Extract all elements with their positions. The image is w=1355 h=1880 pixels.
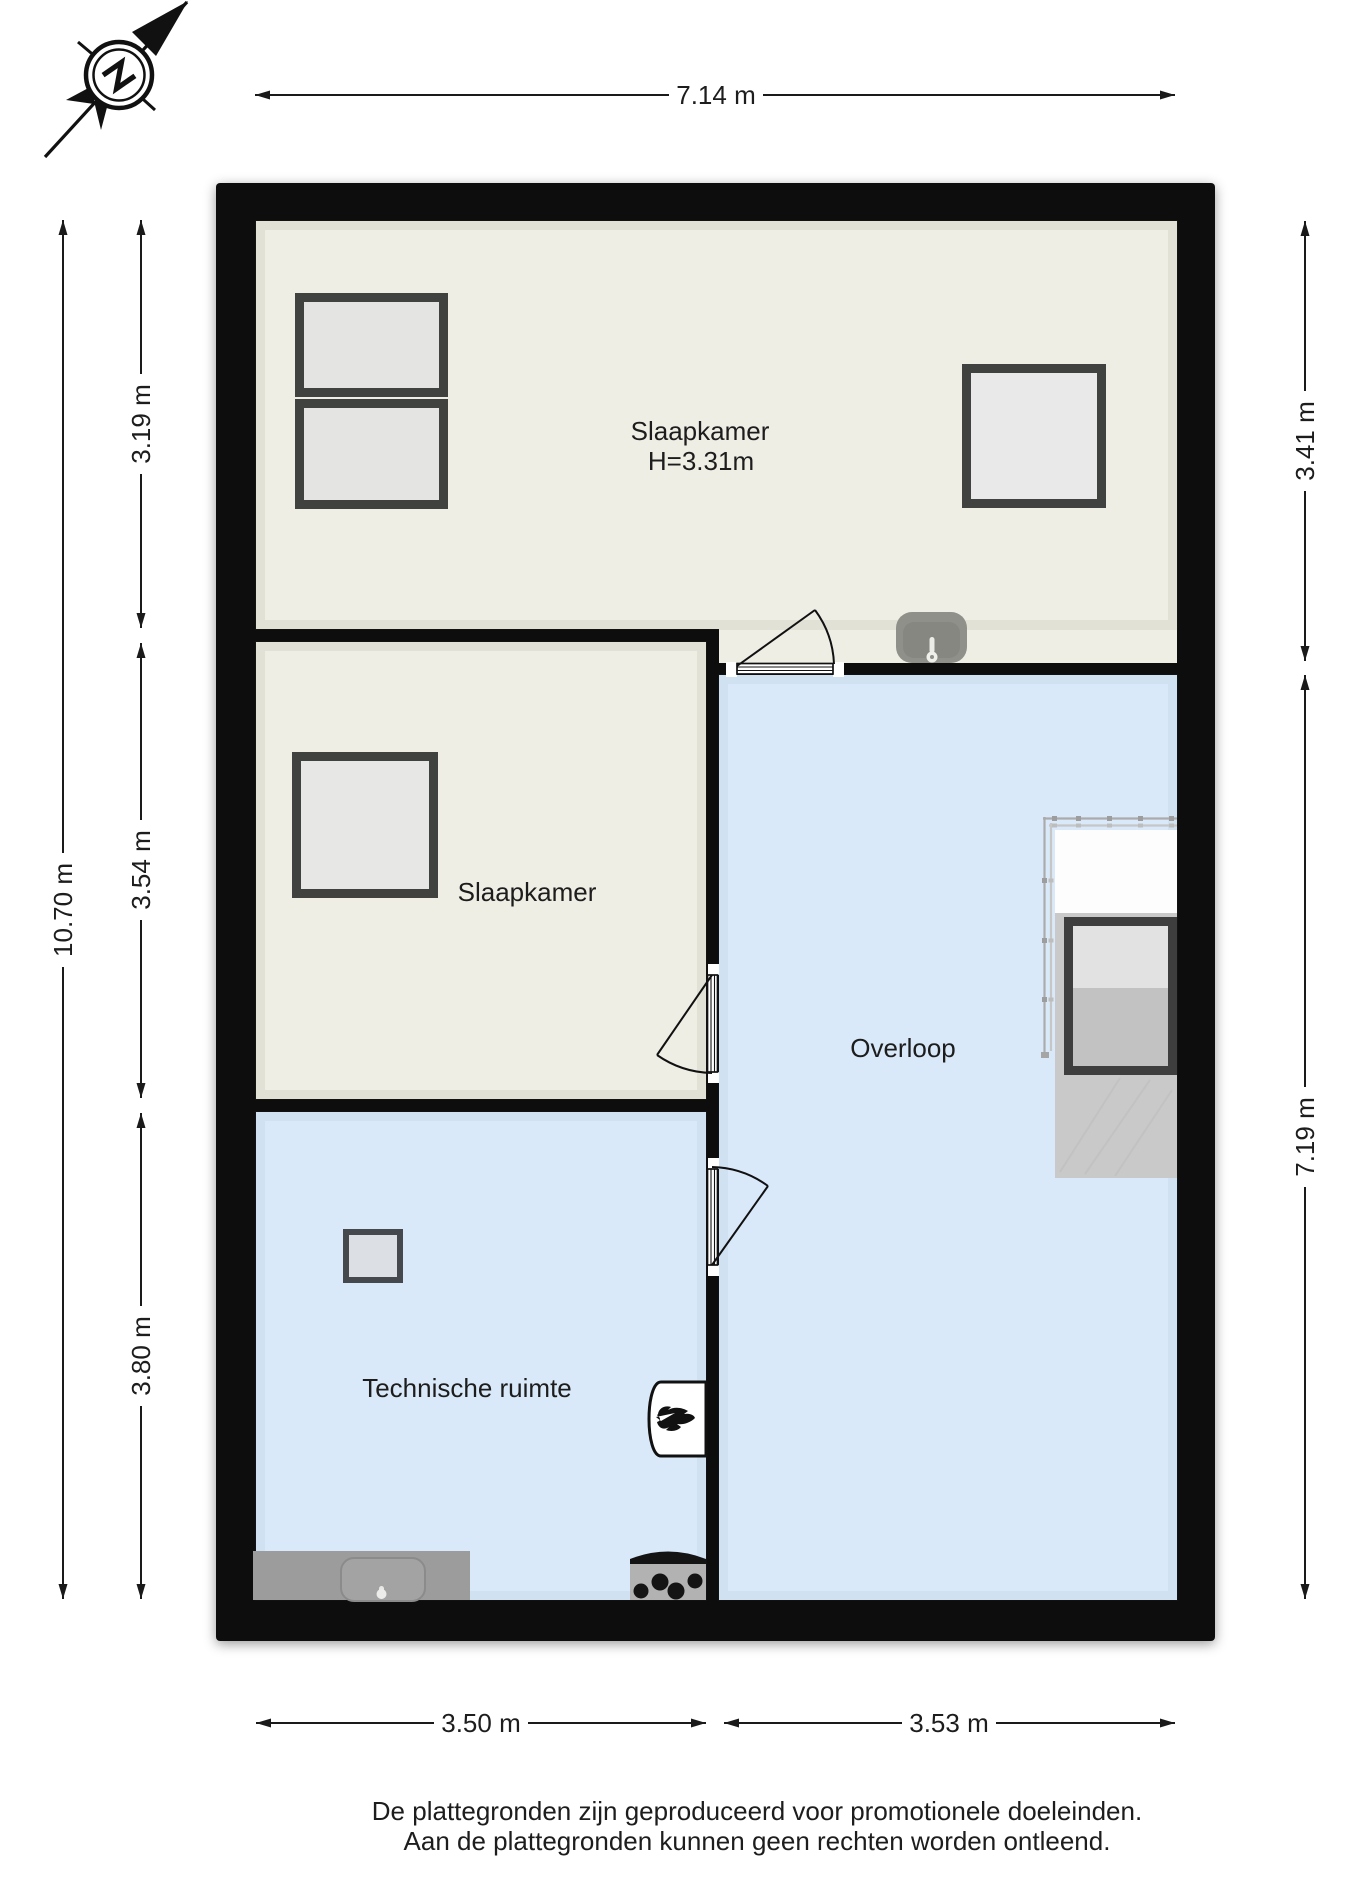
svg-text:Aan de plattegronden kunnen ge: Aan de plattegronden kunnen geen rechten… <box>404 1826 1111 1856</box>
svg-text:3.41 m: 3.41 m <box>1290 401 1320 481</box>
svg-text:3.53 m: 3.53 m <box>909 1708 989 1738</box>
svg-text:3.80 m: 3.80 m <box>126 1316 156 1396</box>
svg-text:Slaapkamer: Slaapkamer <box>631 416 770 446</box>
svg-text:H=3.31m: H=3.31m <box>648 446 754 476</box>
svg-text:Slaapkamer: Slaapkamer <box>458 877 597 907</box>
svg-text:De plattegronden zijn geproduc: De plattegronden zijn geproduceerd voor … <box>372 1796 1142 1826</box>
svg-text:7.19 m: 7.19 m <box>1290 1097 1320 1177</box>
svg-text:3.54 m: 3.54 m <box>126 830 156 910</box>
svg-text:10.70 m: 10.70 m <box>48 863 78 957</box>
svg-text:7.14 m: 7.14 m <box>676 80 756 110</box>
svg-text:3.19 m: 3.19 m <box>126 384 156 464</box>
svg-text:Technische ruimte: Technische ruimte <box>362 1373 572 1403</box>
svg-text:3.50 m: 3.50 m <box>441 1708 521 1738</box>
svg-text:Overloop: Overloop <box>850 1033 956 1063</box>
